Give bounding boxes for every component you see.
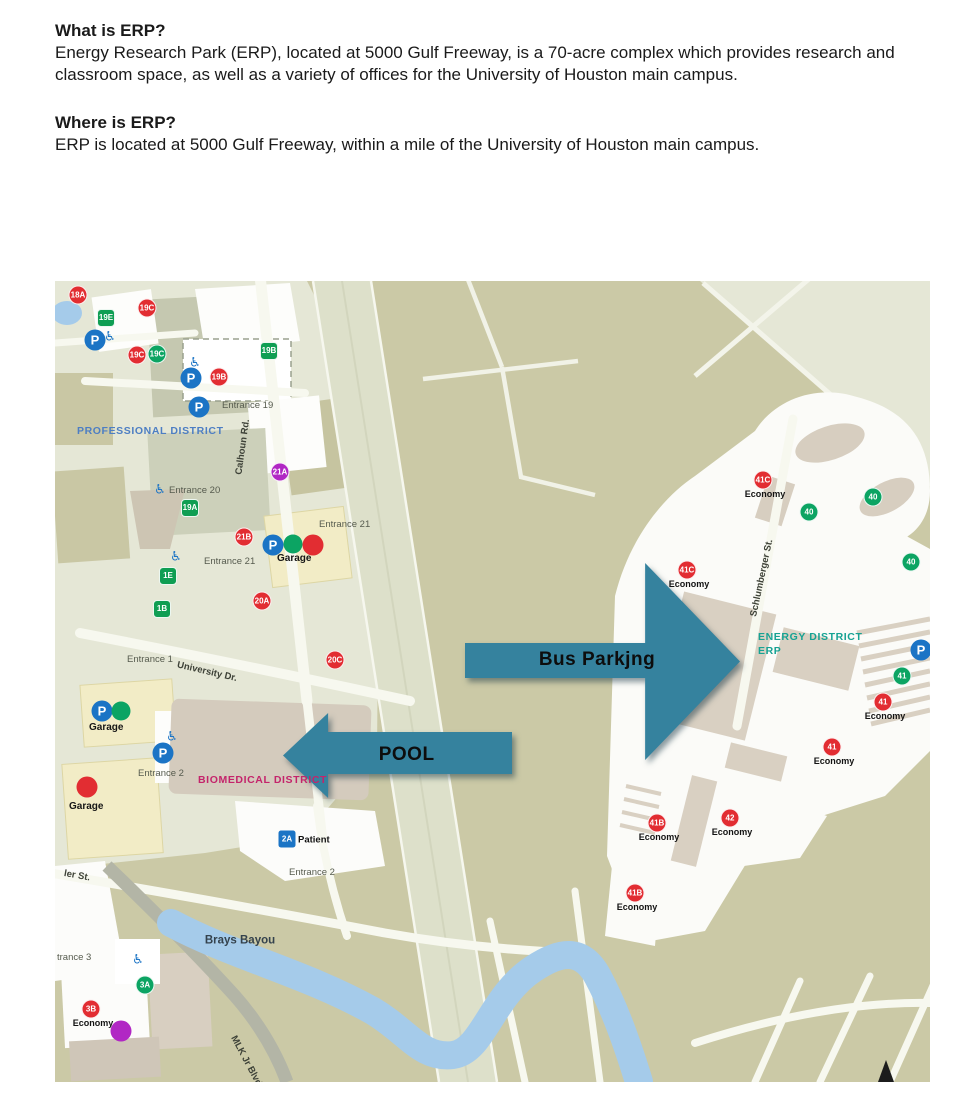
marker-sublabel: Economy bbox=[814, 756, 855, 766]
garage-level-dot bbox=[111, 1021, 132, 1042]
parking-icon: P bbox=[911, 640, 931, 661]
marker-3A: 3A bbox=[136, 976, 155, 995]
marker-19C: 19C bbox=[138, 299, 157, 318]
marker-2A: 2A bbox=[279, 831, 296, 848]
marker-3B: 3B bbox=[82, 1000, 101, 1019]
street-label: University Dr. bbox=[176, 660, 238, 683]
marker-20A: 20A bbox=[253, 592, 272, 611]
page: What is ERP? Energy Research Park (ERP),… bbox=[0, 0, 980, 1110]
marker-sublabel: Economy bbox=[617, 902, 658, 912]
accessible-parking-icon: ♿ bbox=[189, 357, 201, 370]
street-label: MLK Jr Blvd bbox=[229, 1034, 263, 1082]
answer-text: Energy Research Park (ERP), located at 5… bbox=[55, 42, 940, 86]
question-heading: What is ERP? bbox=[55, 20, 940, 42]
garage-level-dot bbox=[77, 777, 98, 798]
marker-41: 41 bbox=[823, 738, 842, 757]
question-heading: Where is ERP? bbox=[55, 112, 940, 134]
marker-21B: 21B bbox=[235, 528, 254, 547]
entrance-label: Entrance 21 bbox=[319, 520, 370, 530]
marker-41C: 41C bbox=[754, 471, 773, 490]
marker-40: 40 bbox=[864, 488, 883, 507]
accessible-parking-icon: ♿ bbox=[154, 484, 166, 497]
marker-sublabel: Economy bbox=[73, 1018, 114, 1028]
faq-article: What is ERP? Energy Research Park (ERP),… bbox=[55, 20, 940, 182]
district-label: ERP bbox=[758, 646, 781, 657]
entrance-label: Entrance 19 bbox=[222, 401, 273, 411]
entrance-label: Entrance 2 bbox=[289, 868, 335, 878]
marker-19A: 19A bbox=[181, 499, 199, 517]
marker-1B: 1B bbox=[153, 600, 171, 618]
entrance-label: Entrance 21 bbox=[204, 557, 255, 567]
garage-level-dot bbox=[303, 535, 324, 556]
garage-level-dot bbox=[112, 702, 131, 721]
street-label: ler St. bbox=[63, 869, 91, 883]
marker-41C: 41C bbox=[678, 561, 697, 580]
accessible-parking-icon: ♿ bbox=[104, 331, 116, 344]
entrance-label: Entrance 2 bbox=[138, 769, 184, 779]
marker-19E: 19E bbox=[97, 309, 115, 327]
district-label: ENERGY DISTRICT bbox=[758, 632, 862, 643]
marker-sublabel: Economy bbox=[639, 832, 680, 842]
accessible-parking-icon: ♿ bbox=[166, 731, 178, 744]
street-label: Calhoun Rd. bbox=[234, 419, 251, 476]
accessible-parking-icon: ♿ bbox=[170, 551, 182, 564]
street-label: Schlumberger St. bbox=[749, 539, 775, 618]
parking-icon: P bbox=[189, 397, 210, 418]
bayou-label: Brays Bayou bbox=[205, 935, 275, 947]
marker-20C: 20C bbox=[326, 651, 345, 670]
marker-sublabel: Economy bbox=[669, 579, 710, 589]
marker-40: 40 bbox=[902, 553, 921, 572]
marker-19C: 19C bbox=[128, 346, 147, 365]
entrance-label: Entrance 20 bbox=[169, 486, 220, 496]
entrance-label: trance 3 bbox=[57, 953, 91, 963]
garage-label: Garage bbox=[277, 554, 311, 564]
marker-sublabel: Economy bbox=[712, 827, 753, 837]
arrow-label: Bus Parkjng bbox=[539, 649, 655, 671]
marker-42: 42 bbox=[721, 809, 740, 828]
parking-icon: P bbox=[85, 330, 106, 351]
marker-41B: 41B bbox=[626, 884, 645, 903]
marker-40: 40 bbox=[800, 503, 819, 522]
accessible-parking-icon: ♿ bbox=[132, 954, 144, 967]
district-label: PROFESSIONAL DISTRICT bbox=[77, 426, 224, 437]
marker-19B: 19B bbox=[210, 368, 229, 387]
answer-text: ERP is located at 5000 Gulf Freeway, wit… bbox=[55, 134, 940, 156]
parking-icon: P bbox=[92, 701, 113, 722]
campus-map: Bus ParkjngPOOLPROFESSIONAL DISTRICTBIOM… bbox=[55, 281, 930, 1082]
arrow-label: POOL bbox=[379, 744, 435, 766]
parking-icon: P bbox=[263, 535, 284, 556]
entrance-label: Entrance 1 bbox=[127, 655, 173, 665]
marker-21A: 21A bbox=[271, 463, 290, 482]
parking-icon: P bbox=[153, 743, 174, 764]
marker-41: 41 bbox=[874, 693, 893, 712]
marker-sublabel: Economy bbox=[745, 489, 786, 499]
parking-icon: P bbox=[181, 368, 202, 389]
marker-18A: 18A bbox=[69, 286, 88, 305]
marker-19C: 19C bbox=[148, 345, 167, 364]
garage-label: Garage bbox=[69, 802, 103, 812]
marker-sublabel: Economy bbox=[865, 711, 906, 721]
marker-sidelabel: Patient bbox=[298, 835, 330, 846]
garage-level-dot bbox=[284, 535, 303, 554]
marker-19B: 19B bbox=[260, 342, 278, 360]
marker-41: 41 bbox=[893, 667, 912, 686]
faq-section: What is ERP? Energy Research Park (ERP),… bbox=[55, 20, 940, 86]
faq-section: Where is ERP? ERP is located at 5000 Gul… bbox=[55, 112, 940, 156]
marker-41B: 41B bbox=[648, 814, 667, 833]
marker-1E: 1E bbox=[159, 567, 177, 585]
garage-label: Garage bbox=[89, 723, 123, 733]
map-overlay: Bus ParkjngPOOLPROFESSIONAL DISTRICTBIOM… bbox=[55, 281, 930, 1082]
district-label: BIOMEDICAL DISTRICT bbox=[198, 775, 327, 786]
